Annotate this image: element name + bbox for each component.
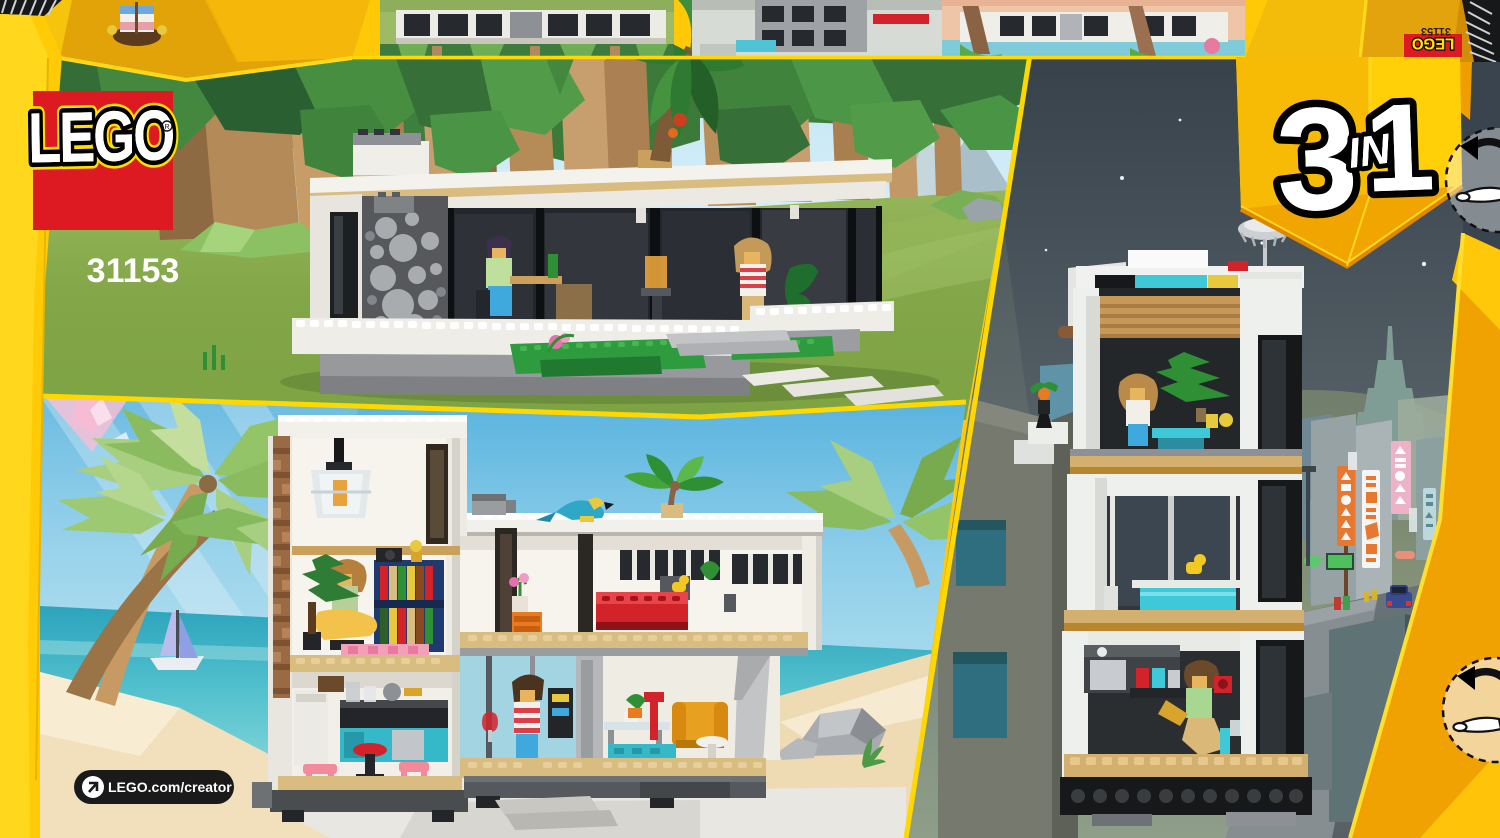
svg-text:LEGO: LEGO [28, 96, 174, 178]
svg-text:R: R [164, 124, 169, 131]
svg-text:31153: 31153 [1421, 25, 1451, 37]
svg-text:31153: 31153 [87, 252, 180, 290]
svg-text:3: 3 [1274, 76, 1361, 242]
svg-text:LEGO.com/creator: LEGO.com/creator [108, 779, 232, 795]
svg-text:IN: IN [1345, 124, 1395, 177]
